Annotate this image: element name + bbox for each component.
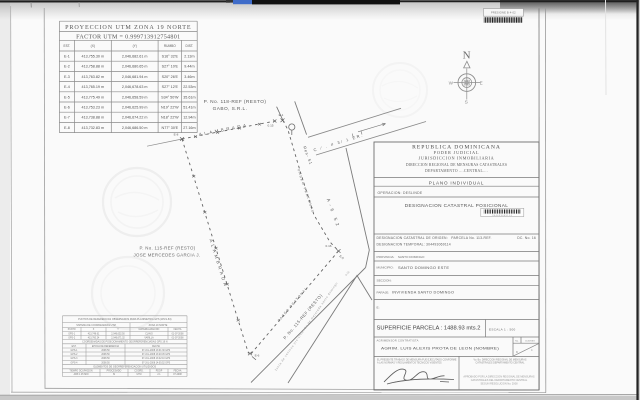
svg-text:S34° 50'W: S34° 50'W [161,95,179,99]
svg-text:PDOP: PDOP [156,371,163,373]
svg-text:ARP-1 45 MIN: ARP-1 45 MIN [74,373,89,376]
svg-text:EST.: EST. [72,346,77,348]
svg-text:W: W [449,81,454,86]
svg-text:S: S [465,100,468,106]
svg-text:CATASTRALES DEL DEPARTAMENTO C: CATASTRALES DEL DEPARTAMENTO CENTRAL [471,379,528,382]
svg-text:413,753.23 m: 413,753.23 m [82,106,105,110]
svg-text:GPS-3: GPS-3 [71,358,79,360]
svg-text:2,046,678.63 m: 2,046,678.63 m [122,85,148,89]
svg-text:(Y): (Y) [133,44,137,48]
svg-text:N: N [463,50,471,62]
svg-text:GPS-2: GPS-2 [68,337,76,339]
svg-text:413,748.61: 413,748.61 [88,333,100,335]
svg-text:TIEMPO OCUPACION: TIEMPO OCUPACION [69,370,93,373]
svg-text:N18° 22'W: N18° 22'W [161,116,179,120]
svg-text:2008.50: 2008.50 [101,358,110,360]
svg-text:ESCALA 1 : 500: ESCALA 1 : 500 [489,327,516,331]
svg-text:PUNTO: PUNTO [68,329,76,331]
svg-text:S16° 32'E: S16° 32'E [162,55,179,59]
svg-text:DIST.: DIST. [186,44,194,48]
svg-text:PRESIONE B 4-02: PRESIONE B 4-02 [491,11,516,15]
svg-text:S27° 12'E: S27° 12'E [162,85,179,89]
svg-text:12.94m: 12.94m [183,116,195,120]
svg-text:OPERACION: DESLINDE: OPERACION: DESLINDE [378,191,423,195]
svg-text:No.: No. [515,340,519,342]
svg-text:0.15: 0.15 [267,123,273,127]
svg-text:2,046,625.99 m: 2,046,625.99 m [122,106,148,110]
svg-text:EST.: EST. [64,44,71,48]
svg-text:N19° 22'W: N19° 22'W [161,106,179,110]
svg-text:MUNICIPIO:: MUNICIPIO: [377,266,394,270]
svg-text:35.61m: 35.61m [183,95,195,99]
svg-text:PUNTOS DE REFERENCIAS OBSERVAD: PUNTOS DE REFERENCIAS OBSERVADOS PARA PL… [78,318,171,321]
svg-text:07-2008: 07-2008 [173,374,182,376]
svg-text:RUMBO: RUMBO [164,44,176,48]
svg-text:07-JUL-2008 13:42:10 GPS: 07-JUL-2008 13:42:10 GPS [142,358,171,360]
svg-text:E-3: E-3 [64,75,70,79]
svg-text:COLEGIO: COLEGIO [525,340,535,342]
svg-text:PROCESADO: PROCESADO [107,370,122,373]
svg-text:S20° 26'E: S20° 26'E [162,75,179,79]
svg-text:DESIGNACION CATASTRAL DE ORIGE: DESIGNACION CATASTRAL DE ORIGEN: PARCELA… [377,236,492,240]
svg-text:FECHA: FECHA [174,370,182,373]
svg-text:413,765.19 m: 413,765.19 m [82,85,105,89]
svg-text:COORD.: COORD. [134,371,144,373]
svg-text:GABO, S.R.L.: GABO, S.R.L. [213,106,248,112]
svg-text:51.41m: 51.41m [183,106,195,110]
svg-text:P. No. 118-REF (RESTO): P. No. 118-REF (RESTO) [204,99,267,105]
svg-text:VARILLA: VARILLA [144,336,154,339]
svg-text:E: E [480,81,483,86]
svg-text:JOSE MERCEDES GARCIA J.: JOSE MERCEDES GARCIA J. [134,253,201,258]
svg-text:ELEMENTOS DE GEORREFERENCIACIO: ELEMENTOS DE GEORREFERENCIACION UTILIZAD… [94,366,157,369]
svg-text:DESIGNACION CATASTRAL POSICION: DESIGNACION CATASTRAL POSICIONAL [405,203,509,208]
svg-text:E-7: E-7 [64,116,70,120]
svg-text:SUPERFICIE PARCELA : 1488.93 m: SUPERFICIE PARCELA : 1488.93 mts.2 [377,326,481,332]
svg-text:E-2: E-2 [64,65,70,69]
svg-text:JURISDICCION INMOBILIARIA: JURISDICCION INMOBILIARIA [419,156,495,161]
svg-text:3.46m: 3.46m [184,75,194,79]
svg-text:GPS-4: GPS-4 [71,362,79,364]
svg-text:PLANO INDIVIDUAL: PLANO INDIVIDUAL [429,181,484,186]
svg-text:N77° 30'E: N77° 30'E [162,126,179,130]
svg-text:413,758.88 m: 413,758.88 m [82,65,105,69]
svg-text:9.44m: 9.44m [184,65,194,69]
svg-text:07-JUL-2008 13:20:45 GPS: 07-JUL-2008 13:20:45 GPS [142,354,171,356]
svg-text:DC. No. 16: DC. No. 16 [517,236,536,240]
svg-text:E-8: E-8 [174,133,179,137]
svg-text:AGRIMENSOR CONTRATISTA: AGRIMENSOR CONTRATISTA [377,339,419,343]
svg-text:SISTEMA DE COORDENADAS UTM: SISTEMA DE COORDENADAS UTM [76,324,116,327]
svg-text:DEPARTAMENTO ....CENTRAL....: DEPARTAMENTO ....CENTRAL.... [425,169,488,173]
svg-text:413,775.49 m: 413,775.49 m [82,95,105,99]
svg-text:PODER JUDICIAL: PODER JUDICIAL [434,150,480,155]
svg-text:2,046,681.94 m: 2,046,681.94 m [122,75,148,79]
svg-text:GPS-1: GPS-1 [71,350,79,352]
svg-text:E-6: E-6 [255,354,260,358]
svg-text:2.13m: 2.13m [184,55,194,59]
svg-text:2008.50: 2008.50 [101,362,110,364]
svg-text:2008.50: 2008.50 [101,350,110,352]
svg-text:E-6: E-6 [64,106,70,110]
svg-text:SEGUN RESOLUCION No. 2008: SEGUN RESOLUCION No. 2008 [481,383,519,386]
svg-text:COORDENADAS DE POSICIONAMIENTO: COORDENADAS DE POSICIONAMIENTO GEORREFER… [82,341,168,344]
svg-text:PROYECCION UTM ZONA 19 NORTE: PROYECCION UTM ZONA 19 NORTE [65,25,191,31]
svg-text:0.16: 0.16 [325,244,331,248]
svg-text:01-07-2008: 01-07-2008 [172,333,184,335]
svg-text:INVIVIENDA SANTO DOMINGO: INVIVIENDA SANTO DOMINGO [392,291,454,295]
svg-text:3 0 4 4 9 3 0 6 9 1 1 4: 3 0 4 4 9 3 0 6 9 1 1 4 [492,215,512,217]
svg-text:2,046,682.61 m: 2,046,682.61 m [122,55,148,59]
svg-text:413,738.88 m: 413,738.88 m [82,116,105,120]
svg-text:2,046,658.59 m: 2,046,658.59 m [122,95,148,99]
svg-text:PARAJE:: PARAJE: [377,290,390,294]
svg-text:07-JUL-2008 13:01:30 GPS: 07-JUL-2008 13:01:30 GPS [142,350,171,352]
svg-text:(X): (X) [91,44,95,48]
svg-text:01-07-2008: 01-07-2008 [172,337,184,339]
svg-text:DIRECCION REGIONAL DE MENSURAS: DIRECCION REGIONAL DE MENSURAS CATASTRAL… [406,163,507,167]
svg-text:22.53m: 22.53m [183,85,195,89]
svg-text:S27° 10'E: S27° 10'E [162,65,179,69]
svg-text:E-5: E-5 [64,95,70,99]
svg-text:FECHA: FECHA [152,345,160,348]
svg-text:E-1: E-1 [64,55,70,59]
svg-text:E:: E: [377,305,380,309]
svg-text:413,763.82 m: 413,763.82 m [82,75,105,79]
svg-text:413,732.83 m: 413,732.83 m [82,126,105,130]
svg-text:PROVINCIA: SANTO DOMINGO: PROVINCIA: SANTO DOMINGO [377,255,425,259]
svg-text:2008.50: 2008.50 [101,354,110,356]
svg-text:SI: SI [113,374,116,376]
svg-text:AGRIM. LUIS ALEXIS PROTA DE L: AGRIM. LUIS ALEXIS PROTA DE LEON (NOMBRE… [381,345,500,350]
svg-text:SECCION:: SECCION: [377,279,392,283]
svg-text:E-1: E-1 [279,113,284,117]
svg-text:27.16m: 27.16m [183,126,195,130]
svg-text:FACTOR UTM = 0.999713912754801: FACTOR UTM = 0.999713912754801 [76,34,180,40]
svg-text:2,046,686.50 m: 2,046,686.50 m [122,126,148,130]
svg-text:CATASTRALES DEPARTAMENTO CENTR: CATASTRALES DEPARTAMENTO CENTRAL [476,362,526,365]
svg-text:APROBADO POR LA DIRECCION REGI: APROBADO POR LA DIRECCION REGIONAL DE ME… [463,375,535,378]
svg-text:CLAVO: CLAVO [145,332,153,335]
svg-text:2,046,674.22 m: 2,046,674.22 m [122,116,148,120]
svg-text:DESIGNACION TEMPORAL: 30: DESIGNACION TEMPORAL: 304493069114 [377,243,451,247]
svg-text:EPOCA DE REFERENCIA: EPOCA DE REFERENCIA [92,345,120,348]
svg-text:SANTO DOMINGO ESTE: SANTO DOMINGO ESTE [398,265,449,270]
svg-text:UTM: UTM [137,374,142,376]
svg-text:413,755.30 m: 413,755.30 m [82,55,105,59]
svg-text:2,046,680.65 m: 2,046,680.65 m [122,65,148,69]
svg-text:FECHA: FECHA [174,328,182,331]
svg-text:E-8: E-8 [64,126,70,130]
svg-text:P. No. 115-REF (RESTO): P. No. 115-REF (RESTO) [140,246,196,251]
svg-text:2,046,671.32: 2,046,671.32 [111,337,125,339]
svg-text:2,046,652.50: 2,046,652.50 [111,333,125,335]
svg-text:E-4: E-4 [64,85,70,89]
svg-text:413,760.24: 413,760.24 [88,337,100,339]
svg-text:A LAS NORMAS Y REGLAMENTOS TEC: A LAS NORMAS Y REGLAMENTOS TECNICOS VIGE… [377,362,442,365]
svg-text:MATERIALIZACION: MATERIALIZACION [139,328,160,331]
svg-text:GPS-2: GPS-2 [71,354,79,356]
svg-text:ZONA 19 NORTE: ZONA 19 NORTE [149,324,168,327]
svg-text:07-JUL-2008 14:05:52 GPS: 07-JUL-2008 14:05:52 GPS [142,362,171,364]
svg-text:GPS-1: GPS-1 [68,333,76,335]
